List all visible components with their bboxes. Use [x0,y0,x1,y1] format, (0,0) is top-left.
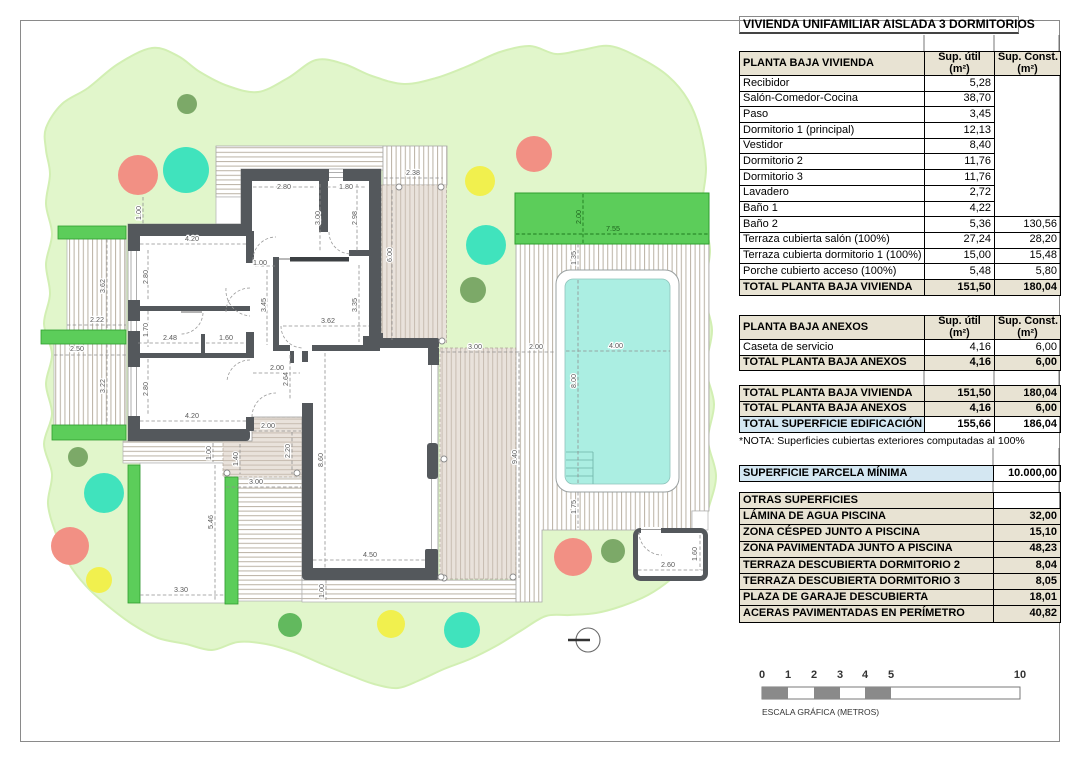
svg-text:3.00: 3.00 [313,211,322,225]
svg-text:3: 3 [837,669,843,681]
svg-text:4.00: 4.00 [609,341,623,350]
svg-text:3.00: 3.00 [249,477,263,486]
svg-text:2: 2 [811,669,817,681]
svg-text:1.60: 1.60 [690,547,699,561]
svg-text:2.20: 2.20 [283,444,292,458]
svg-text:3.62: 3.62 [321,316,335,325]
svg-text:8.60: 8.60 [316,453,325,467]
svg-text:4: 4 [862,669,869,681]
svg-text:1.80: 1.80 [339,182,353,191]
svg-text:2.60: 2.60 [661,560,675,569]
svg-text:3.30: 3.30 [174,585,188,594]
svg-text:2.38: 2.38 [406,168,420,177]
svg-text:1.75: 1.75 [569,500,578,514]
svg-text:10: 10 [1014,669,1026,681]
svg-text:3.22: 3.22 [98,379,107,393]
svg-text:3.62: 3.62 [98,279,107,293]
svg-text:6.00: 6.00 [385,248,394,262]
svg-text:1.00: 1.00 [134,206,143,220]
svg-text:1.35: 1.35 [569,251,578,265]
svg-text:1: 1 [785,669,791,681]
svg-text:2.50: 2.50 [70,344,84,353]
svg-text:2.00: 2.00 [270,363,284,372]
svg-text:3.35: 3.35 [350,298,359,312]
svg-text:4.20: 4.20 [185,234,199,243]
svg-text:2.00: 2.00 [529,342,543,351]
svg-text:2.64: 2.64 [281,372,290,386]
svg-text:2.98: 2.98 [350,211,359,225]
svg-text:4.20: 4.20 [185,411,199,420]
svg-text:2.48: 2.48 [163,333,177,342]
svg-text:9.40: 9.40 [510,450,519,464]
svg-text:5.46: 5.46 [206,515,215,529]
svg-text:0: 0 [759,669,765,681]
svg-text:2.00: 2.00 [574,210,583,224]
svg-text:3.00: 3.00 [468,342,482,351]
svg-text:5: 5 [888,669,894,681]
svg-text:2.80: 2.80 [141,382,150,396]
svg-text:2.00: 2.00 [261,421,275,430]
svg-text:1.40: 1.40 [231,452,240,466]
svg-text:8.00: 8.00 [569,374,578,388]
svg-text:1.00: 1.00 [204,446,213,460]
svg-text:1.00: 1.00 [253,258,267,267]
svg-text:7.55: 7.55 [606,224,620,233]
svg-text:2.80: 2.80 [277,182,291,191]
svg-text:4.50: 4.50 [363,550,377,559]
svg-text:3.45: 3.45 [259,298,268,312]
svg-text:1.60: 1.60 [219,333,233,342]
svg-text:2.80: 2.80 [141,270,150,284]
svg-text:1.70: 1.70 [141,323,150,337]
svg-text:1.00: 1.00 [317,584,326,598]
svg-text:ESCALA GRÁFICA (METROS): ESCALA GRÁFICA (METROS) [762,707,879,717]
svg-text:2.22: 2.22 [90,315,104,324]
